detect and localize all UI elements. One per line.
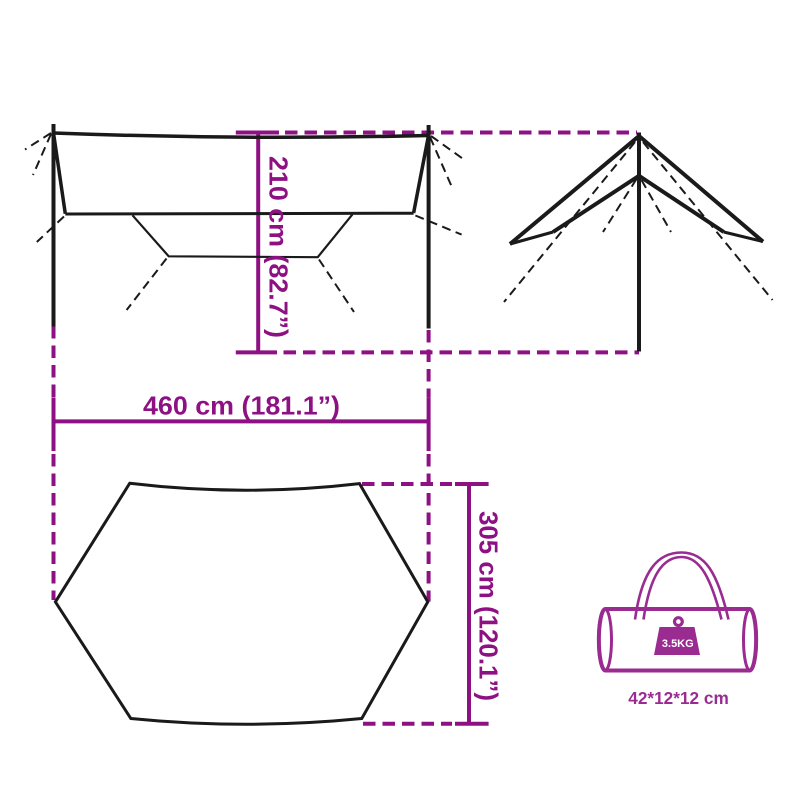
svg-text:460 cm (181.1”): 460 cm (181.1”) bbox=[143, 391, 340, 421]
svg-text:3.5KG: 3.5KG bbox=[662, 638, 694, 650]
svg-text:42*12*12 cm: 42*12*12 cm bbox=[628, 688, 729, 708]
svg-text:210 cm (82.7”): 210 cm (82.7”) bbox=[264, 156, 294, 338]
svg-text:305 cm (120.1”): 305 cm (120.1”) bbox=[474, 511, 504, 701]
